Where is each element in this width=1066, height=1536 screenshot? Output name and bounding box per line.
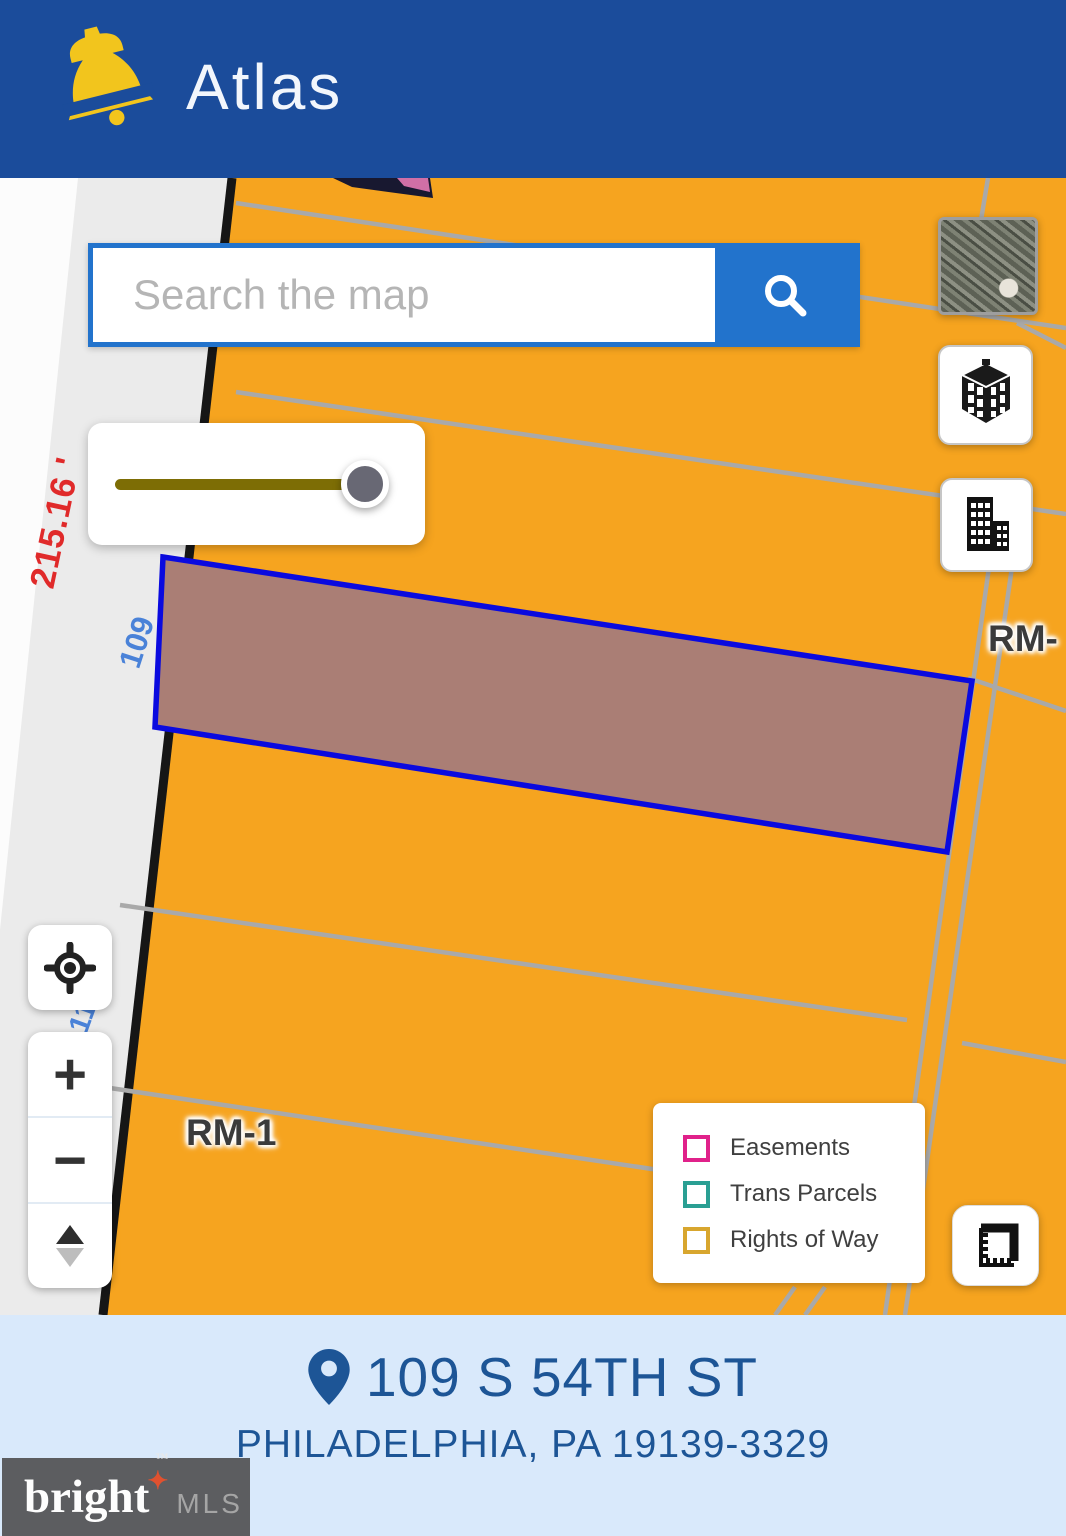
address-line2: PHILADELPHIA, PA 19139-3329 (236, 1423, 830, 1467)
search-input[interactable] (93, 248, 715, 342)
basemap-satellite-button[interactable] (938, 217, 1038, 315)
easements-swatch (683, 1135, 710, 1162)
atlas-app: Atlas (0, 0, 1066, 1536)
zoning-label-rm1: RM-1 (186, 1112, 276, 1154)
compass-arrows-icon (51, 1223, 89, 1269)
legend-label: Easements (730, 1134, 850, 1162)
legend-item-trans-parcels: Trans Parcels (683, 1171, 925, 1217)
rights-of-way-swatch (683, 1227, 710, 1254)
app-header: Atlas (0, 0, 1066, 178)
search-icon (757, 267, 813, 323)
page-title: Atlas (186, 50, 343, 124)
street-view-button[interactable] (940, 478, 1033, 572)
address-line1: 109 S 54TH ST (366, 1345, 758, 1409)
zoom-control: + − (28, 1032, 112, 1288)
bright-mls-watermark: bright✦™ MLS (2, 1458, 250, 1536)
locate-me-button[interactable] (28, 925, 112, 1010)
brand-wordmark: bright✦™ (24, 1470, 162, 1524)
oblique-view-button[interactable] (938, 345, 1033, 445)
legend-item-rights-of-way: Rights of Way (683, 1217, 925, 1263)
measure-icon (969, 1219, 1023, 1273)
transparency-slider[interactable] (115, 479, 371, 490)
layer-transparency-card (88, 423, 425, 545)
zoning-label-rm: RM- (988, 618, 1058, 660)
slider-knob[interactable] (341, 460, 389, 508)
zoom-in-button[interactable]: + (28, 1032, 112, 1116)
map-canvas[interactable]: 215.16 ' 109 11 RM- RM-1 (0, 178, 1066, 1315)
location-pin-icon (308, 1349, 350, 1405)
star-icon: ✦ (147, 1466, 168, 1496)
tilt-compass-button[interactable] (28, 1202, 112, 1288)
crosshair-icon (44, 942, 96, 994)
3d-building-icon (953, 359, 1019, 431)
legend-item-easements: Easements (683, 1125, 925, 1171)
liberty-bell-icon (40, 16, 172, 164)
trans-parcels-swatch (683, 1181, 710, 1208)
brand-suffix: MLS (176, 1488, 243, 1520)
map-legend: Easements Trans Parcels Rights of Way (653, 1103, 925, 1283)
zoom-out-button[interactable]: − (28, 1116, 112, 1202)
legend-label: Rights of Way (730, 1226, 879, 1254)
search-button[interactable] (715, 248, 855, 342)
map-search-bar (88, 243, 860, 347)
building-icon (957, 493, 1017, 557)
trademark-symbol: ™ (155, 1450, 168, 1465)
measure-button[interactable] (952, 1205, 1039, 1286)
legend-label: Trans Parcels (730, 1180, 877, 1208)
